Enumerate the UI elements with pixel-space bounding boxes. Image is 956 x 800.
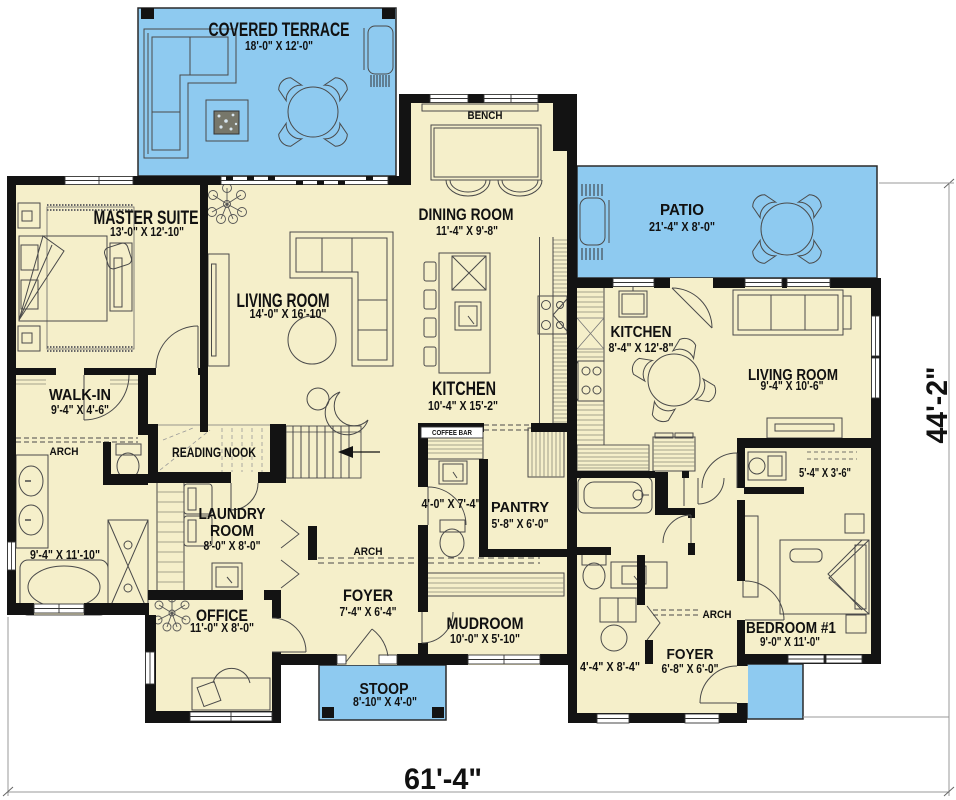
svg-text:PANTRY: PANTRY	[491, 499, 549, 516]
svg-text:44'-2": 44'-2"	[921, 367, 954, 444]
svg-text:MUDROOM: MUDROOM	[447, 614, 524, 633]
svg-text:11'-4" X 9'-8": 11'-4" X 9'-8"	[436, 223, 498, 238]
svg-text:FOYER: FOYER	[343, 586, 393, 605]
svg-text:4'-4" X 8'-4": 4'-4" X 8'-4"	[580, 660, 640, 674]
svg-text:18'-0" X 12'-0": 18'-0" X 12'-0"	[245, 38, 313, 53]
svg-text:11'-0" X 8'-0": 11'-0" X 8'-0"	[190, 621, 254, 635]
svg-text:ROOM: ROOM	[210, 523, 254, 540]
svg-text:DINING ROOM: DINING ROOM	[419, 205, 514, 224]
svg-text:7'-4" X 6'-4": 7'-4" X 6'-4"	[340, 605, 397, 619]
svg-text:10'-4" X 15'-2": 10'-4" X 15'-2"	[428, 398, 498, 413]
svg-text:FOYER: FOYER	[667, 646, 714, 663]
svg-text:COFFEE BAR: COFFEE BAR	[432, 430, 472, 437]
svg-text:ARCH: ARCH	[354, 546, 383, 558]
svg-text:9'-4" X 10'-6": 9'-4" X 10'-6"	[761, 379, 824, 393]
svg-text:6'-8" X 6'-0": 6'-8" X 6'-0"	[662, 662, 719, 676]
svg-text:5'-8" X 6'-0": 5'-8" X 6'-0"	[492, 517, 549, 531]
svg-text:10'-0" X 5'-10": 10'-0" X 5'-10"	[450, 632, 520, 646]
svg-text:21'-4" X 8'-0": 21'-4" X 8'-0"	[649, 220, 715, 234]
svg-text:ARCH: ARCH	[703, 609, 732, 621]
svg-text:KITCHEN: KITCHEN	[611, 324, 672, 341]
svg-text:8'-10" X 4'-0": 8'-10" X 4'-0"	[353, 695, 417, 709]
svg-text:BENCH: BENCH	[468, 110, 503, 122]
svg-text:5'-4" X 3'-6": 5'-4" X 3'-6"	[799, 466, 851, 480]
svg-text:LAUNDRY: LAUNDRY	[199, 506, 266, 523]
svg-text:READING NOOK: READING NOOK	[172, 445, 256, 460]
svg-text:4'-0" X 7'-4": 4'-0" X 7'-4"	[422, 497, 481, 511]
svg-text:61'-4": 61'-4"	[404, 763, 482, 796]
svg-text:WALK-IN: WALK-IN	[49, 387, 111, 404]
svg-text:9'-4" X 11'-10": 9'-4" X 11'-10"	[30, 548, 100, 562]
svg-text:ARCH: ARCH	[50, 446, 79, 458]
svg-text:13'-0" X 12'-10": 13'-0" X 12'-10"	[110, 224, 184, 239]
svg-text:9'-0" X 11'-0": 9'-0" X 11'-0"	[760, 635, 820, 649]
svg-text:14'-0" X 16'-10": 14'-0" X 16'-10"	[250, 306, 327, 321]
svg-text:PATIO: PATIO	[660, 202, 704, 219]
svg-text:KITCHEN: KITCHEN	[432, 379, 496, 400]
svg-text:9'-4" X 4'-6": 9'-4" X 4'-6"	[51, 403, 109, 417]
svg-text:8'-0" X 8'-0": 8'-0" X 8'-0"	[204, 539, 261, 553]
svg-text:8'-4" X 12'-8": 8'-4" X 12'-8"	[609, 341, 674, 355]
